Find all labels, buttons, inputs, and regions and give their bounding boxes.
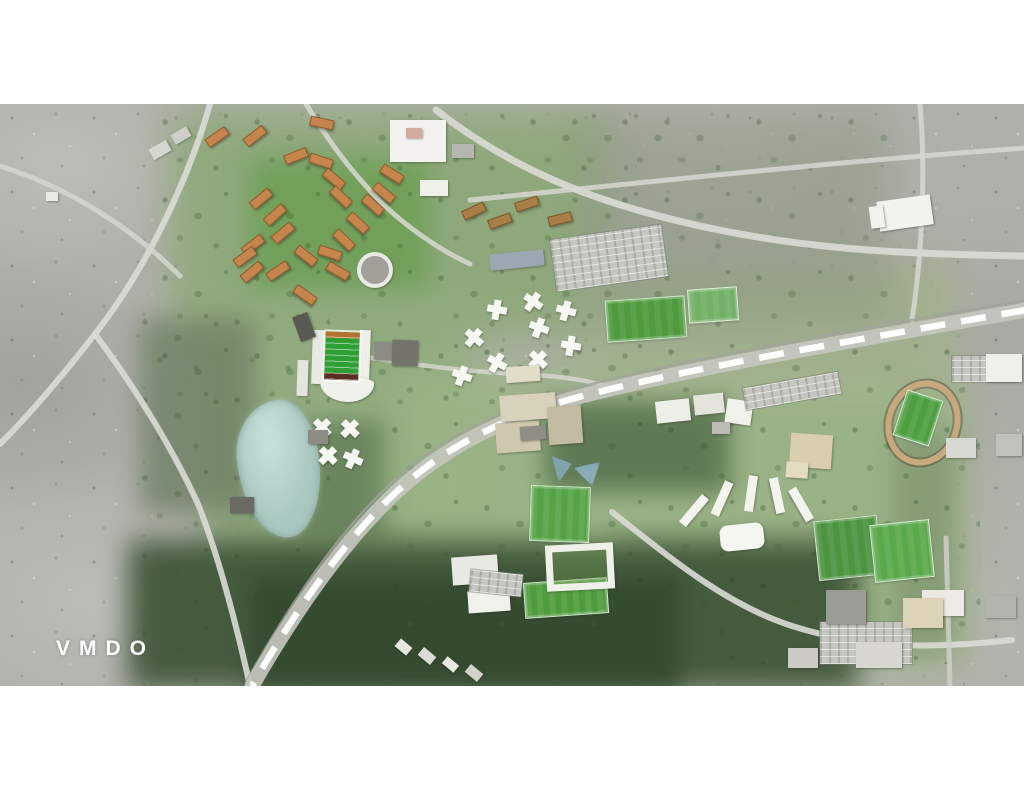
aerial-map: VMDO	[0, 104, 1024, 686]
proposed-housing-pinwheel	[485, 298, 508, 321]
proposed-housing-pinwheel	[554, 299, 578, 323]
dorm-roof-east	[487, 212, 513, 230]
dorm-roof	[263, 203, 288, 226]
dorm-roof	[309, 116, 335, 131]
proposed-housing-pinwheel	[526, 315, 552, 341]
lakeside-x-building	[340, 446, 367, 473]
solar-canopy	[489, 249, 544, 271]
buildings-and-fields-layer	[0, 104, 1024, 686]
warehouse	[856, 642, 902, 668]
dorm-roof	[293, 245, 318, 268]
campus-hall-north	[693, 392, 725, 415]
town-building	[148, 140, 171, 160]
dorm-roof	[292, 284, 317, 306]
parking-lot-corridor	[743, 372, 841, 410]
rec-center	[392, 340, 419, 367]
retail-building	[996, 434, 1022, 456]
lakeside-x-building	[336, 415, 364, 443]
proposed-housing-pinwheel	[559, 334, 582, 357]
roadside-building	[418, 647, 437, 665]
office-courtyard	[826, 590, 866, 624]
dorm-roof-east	[461, 201, 487, 220]
lake	[231, 396, 327, 542]
town-building	[46, 192, 58, 201]
proposed-housing-pinwheel	[449, 363, 475, 389]
stadium-west-hall	[296, 360, 308, 396]
campus-hall	[452, 144, 474, 158]
dorm-roof	[271, 221, 296, 244]
round-hall	[357, 252, 393, 288]
roadside-building	[465, 664, 484, 682]
tennis-courts	[687, 286, 739, 323]
academic-roof	[520, 425, 547, 441]
vmdo-logo: VMDO	[56, 637, 155, 661]
dorm-roof	[317, 245, 343, 262]
student-center-wing	[785, 461, 808, 478]
dorm-roof	[346, 211, 371, 234]
dorm-roof	[283, 147, 309, 165]
stadium-stand-west	[311, 330, 325, 384]
dorm-roof	[242, 125, 267, 148]
arena-building	[292, 312, 316, 342]
stadium-football-field	[324, 331, 360, 380]
dorm-roof	[332, 228, 356, 252]
dorm-roof	[325, 261, 351, 282]
dorm-roof	[308, 153, 334, 170]
office-building	[986, 596, 1016, 618]
soccer-field-northeast	[605, 295, 688, 342]
campus-pond	[574, 462, 600, 486]
proposed-housing-pinwheel	[460, 324, 488, 352]
roadside-building	[395, 638, 413, 655]
lakeside-hall	[230, 497, 254, 513]
town-building	[170, 126, 191, 145]
dorm-roof	[265, 260, 290, 282]
dorm-roof-east	[514, 196, 540, 213]
retail-building	[946, 438, 976, 458]
roadside-building	[442, 656, 459, 673]
campus-hall	[420, 180, 448, 196]
residence-bar	[769, 477, 785, 514]
warehouse	[788, 648, 818, 668]
rec-field-east	[869, 519, 935, 583]
residence-bar	[711, 480, 734, 517]
residence-bar	[744, 475, 758, 512]
academic-building	[505, 365, 540, 383]
dorm-roof	[204, 126, 229, 148]
university-center	[390, 120, 446, 162]
dorm-roof-east	[547, 211, 573, 227]
dining-commons	[719, 522, 765, 552]
hospital-wing	[869, 205, 886, 229]
office-building-tan	[903, 598, 943, 628]
big-box-store	[986, 354, 1022, 382]
campus-hall-north	[655, 398, 691, 423]
courtyard-residence	[545, 542, 615, 591]
proposed-housing-pinwheel	[519, 288, 547, 316]
lakeside-hall	[308, 430, 328, 444]
university-center-roof	[406, 128, 422, 138]
campus-hall-north	[712, 422, 730, 434]
residence-bar	[679, 494, 709, 527]
dorm-roof	[249, 187, 274, 210]
stadium-stand-east	[358, 330, 371, 380]
campus-pond	[548, 456, 572, 482]
dorm-roof	[379, 163, 405, 184]
academic-building	[547, 405, 584, 445]
plan-rendering-page: VMDO	[0, 0, 1024, 791]
soccer-field-central	[529, 485, 591, 543]
parking-lot-north	[550, 224, 668, 291]
residence-bar	[788, 487, 814, 523]
